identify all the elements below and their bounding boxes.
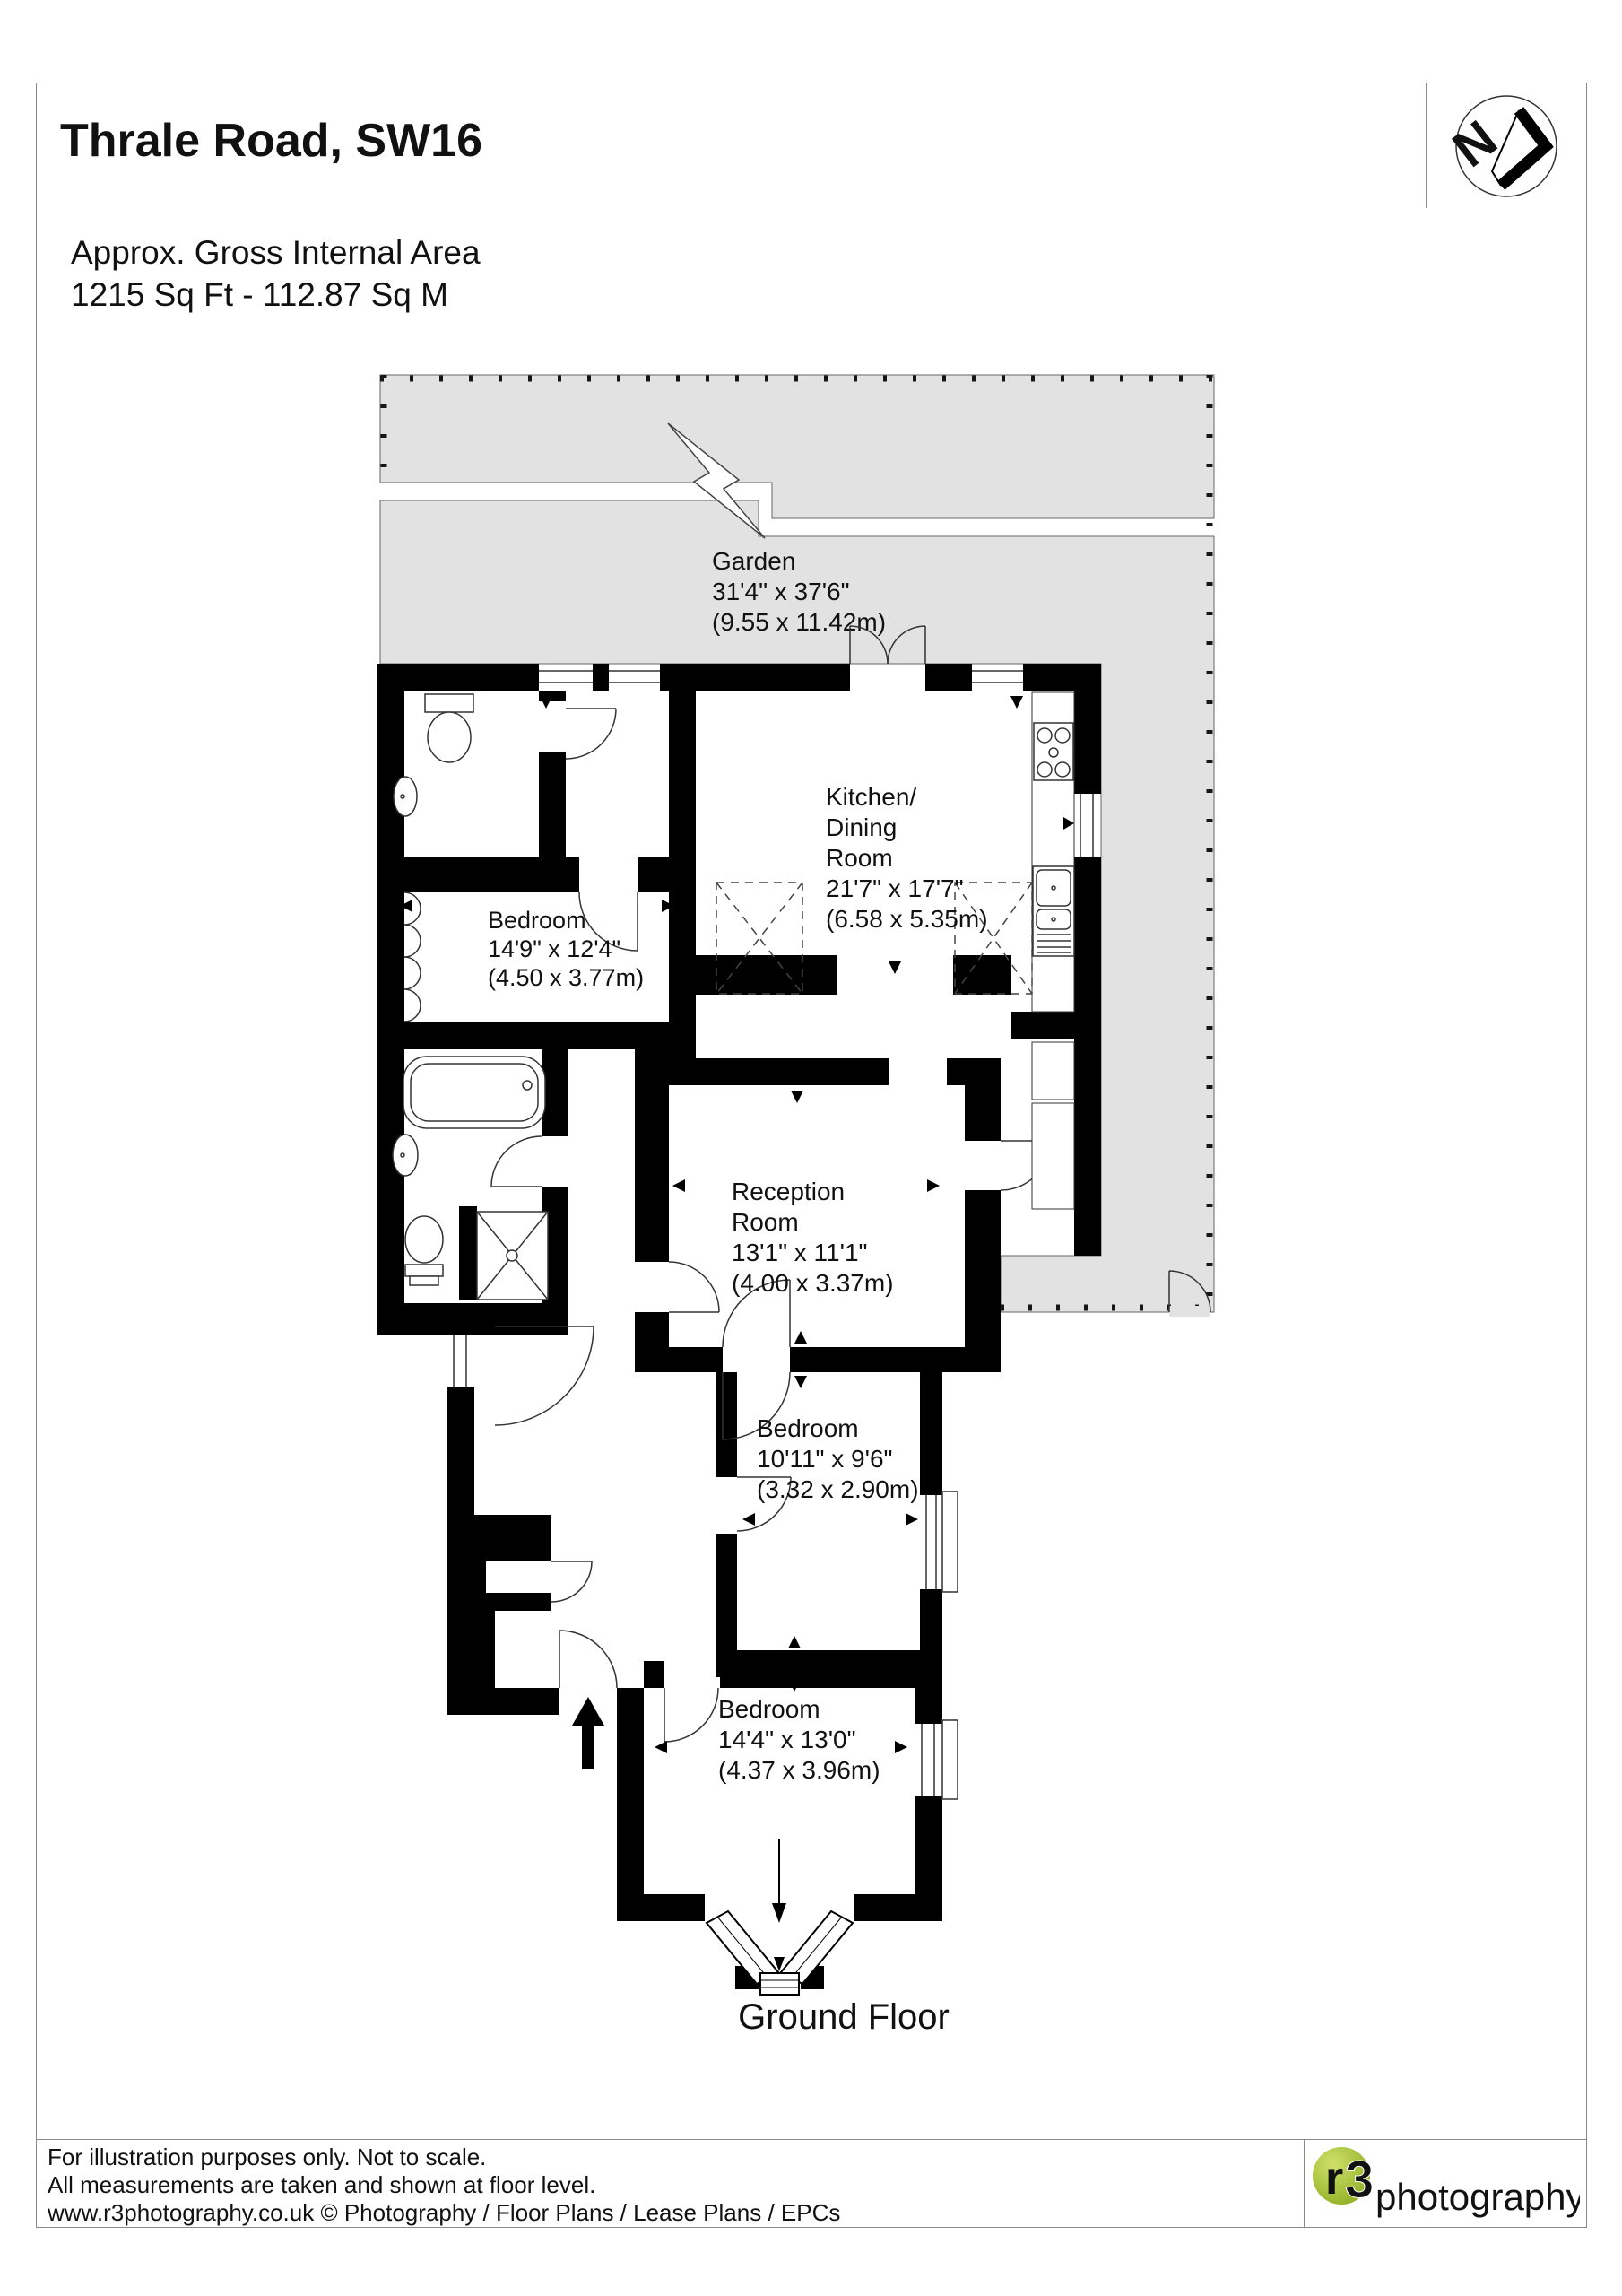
svg-text:21'7" x 17'7": 21'7" x 17'7" <box>826 874 964 902</box>
floor-label: Ground Floor <box>738 1997 950 2037</box>
plan-area: Approx. Gross Internal Area 1215 Sq Ft -… <box>36 208 1587 2140</box>
bedroom3-label: Bedroom 14'4" x 13'0" (4.37 x 3.96m) <box>718 1695 880 1784</box>
svg-text:Dining: Dining <box>826 813 897 841</box>
svg-text:(3.32 x 2.90m): (3.32 x 2.90m) <box>757 1475 919 1503</box>
reception-west-door-arc <box>669 1262 719 1312</box>
wc-door-arc <box>566 709 616 759</box>
walls <box>377 664 1101 1989</box>
compass-icon: N <box>1444 89 1569 204</box>
svg-text:(4.50 x 3.77m): (4.50 x 3.77m) <box>488 964 644 991</box>
page-title: Thrale Road, SW16 <box>60 114 482 168</box>
bedroom3-window <box>942 1720 958 1799</box>
logo-wordmark: photography <box>1375 2176 1580 2218</box>
floorplan-drawing: Garden 31'4" x 37'6" (9.55 x 11.42m) <box>373 368 1220 2054</box>
svg-text:Room: Room <box>732 1208 799 1236</box>
bay-window <box>707 1911 853 1995</box>
bathroom-toilet-icon <box>405 1216 443 1263</box>
svg-text:14'9" x 12'4": 14'9" x 12'4" <box>488 935 620 962</box>
svg-text:Kitchen/: Kitchen/ <box>826 783 916 811</box>
reception-label: Reception Room 13'1" x 11'1" (4.00 x 3.3… <box>732 1178 894 1297</box>
logo-letter-r: r <box>1325 2152 1343 2205</box>
hall-door-arc <box>495 1326 594 1425</box>
kitchen-label: Kitchen/ Dining Room 21'7" x 17'7" (6.58… <box>826 783 988 933</box>
wc-toilet-icon <box>425 694 473 712</box>
footer-line1: For illustration purposes only. Not to s… <box>48 2144 840 2171</box>
front-door-arc <box>559 1631 617 1688</box>
bathroom-door-arc <box>491 1136 542 1187</box>
svg-text:(6.58 x 5.35m): (6.58 x 5.35m) <box>826 905 988 933</box>
svg-text:(4.37 x 3.96m): (4.37 x 3.96m) <box>718 1756 880 1784</box>
floorplan-page: Thrale Road, SW16 N Approx. Gross Intern… <box>0 0 1622 2296</box>
galley-unit-2 <box>1032 1103 1074 1209</box>
cupboard-door-arc <box>551 1561 592 1602</box>
bedroom2-window <box>942 1492 958 1592</box>
bedroom2-label: Bedroom 10'11" x 9'6" (3.32 x 2.90m) <box>757 1414 919 1503</box>
svg-text:10'11" x 9'6": 10'11" x 9'6" <box>757 1445 892 1473</box>
svg-text:14'4" x 13'0": 14'4" x 13'0" <box>718 1726 856 1753</box>
svg-text:(4.00 x 3.37m): (4.00 x 3.37m) <box>732 1269 894 1297</box>
footer: For illustration purposes only. Not to s… <box>36 2139 1587 2228</box>
svg-text:Bedroom: Bedroom <box>757 1414 859 1442</box>
svg-text:Garden: Garden <box>712 547 795 575</box>
entrance-arrow <box>572 1697 604 1769</box>
logo-digit-3: 3 <box>1345 2151 1374 2209</box>
svg-text:Reception: Reception <box>732 1178 845 1205</box>
wc-basin-icon <box>394 777 417 816</box>
header: Thrale Road, SW16 N <box>36 83 1587 210</box>
svg-text:31'4" x 37'6": 31'4" x 37'6" <box>712 578 850 605</box>
r3photography-logo: r 3 photography <box>1311 2144 1580 2224</box>
svg-text:Bedroom: Bedroom <box>488 907 586 934</box>
footer-line2: All measurements are taken and shown at … <box>48 2171 840 2199</box>
svg-text:13'1" x 11'1": 13'1" x 11'1" <box>732 1239 867 1266</box>
galley-unit-1 <box>1032 1042 1074 1100</box>
compass-north-letter: N <box>1444 109 1508 178</box>
compass-arrow <box>1501 110 1546 186</box>
bedroom3-door-arc <box>664 1688 718 1742</box>
svg-text:Room: Room <box>826 844 893 872</box>
disclaimer: For illustration purposes only. Not to s… <box>48 2144 840 2227</box>
area-line1: Approx. Gross Internal Area <box>71 231 481 274</box>
logo-cell: r 3 photography <box>1304 2140 1586 2227</box>
bedroom1-label: Bedroom 14'9" x 12'4" (4.50 x 3.77m) <box>488 907 644 991</box>
svg-text:Bedroom: Bedroom <box>718 1695 820 1723</box>
svg-text:(9.55 x 11.42m): (9.55 x 11.42m) <box>712 608 886 636</box>
gross-internal-area: Approx. Gross Internal Area 1215 Sq Ft -… <box>71 231 481 316</box>
area-line2: 1215 Sq Ft - 112.87 Sq M <box>71 274 481 316</box>
footer-line3: www.r3photography.co.uk © Photography / … <box>48 2199 840 2227</box>
bathroom-basin-icon <box>393 1135 418 1176</box>
compass-cell: N <box>1426 83 1586 209</box>
